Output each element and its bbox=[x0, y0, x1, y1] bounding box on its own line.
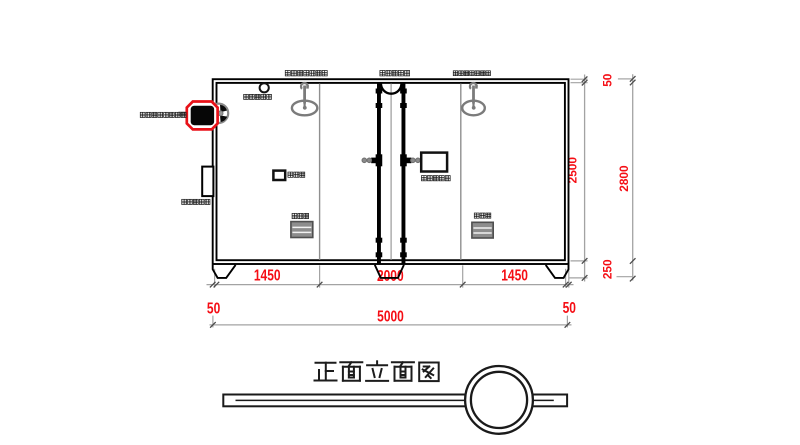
svg-text:1450: 1450 bbox=[254, 266, 281, 284]
svg-text:2800: 2800 bbox=[617, 165, 631, 192]
svg-text:50: 50 bbox=[207, 299, 220, 317]
svg-text:5000: 5000 bbox=[377, 307, 404, 325]
svg-text:1450: 1450 bbox=[501, 266, 528, 284]
svg-text:250: 250 bbox=[601, 259, 615, 279]
svg-text:50: 50 bbox=[601, 73, 615, 87]
svg-text:50: 50 bbox=[563, 298, 576, 316]
